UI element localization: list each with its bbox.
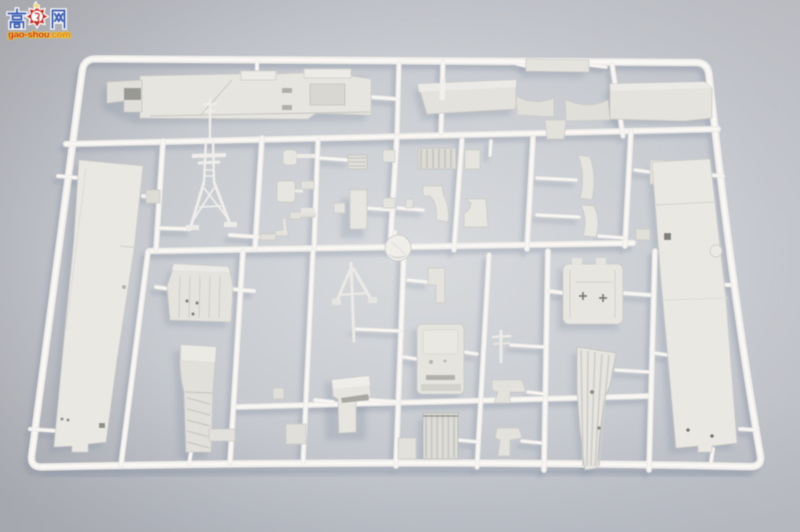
svg-text:.com: .com (49, 30, 71, 41)
svg-text:gao-shou: gao-shou (8, 30, 50, 41)
